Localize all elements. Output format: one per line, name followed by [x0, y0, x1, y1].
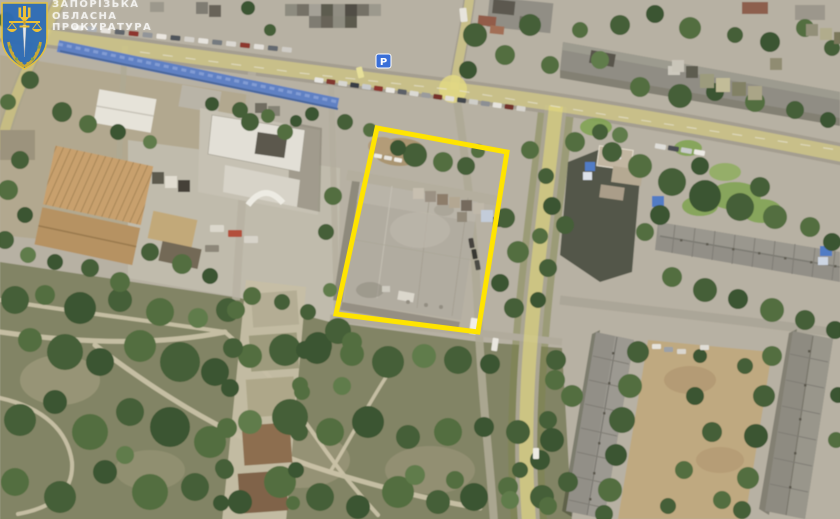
watermark-line-3: ПРОКУРАТУРА — [52, 22, 152, 34]
svg-text:P: P — [380, 57, 387, 68]
watermark-line-2: ОБЛАСНА — [52, 11, 152, 23]
watermark-line-1: ЗАПОРІЗЬКА — [52, 0, 152, 11]
terrain — [0, 0, 840, 519]
watermark-text: ЗАПОРІЗЬКА ОБЛАСНА ПРОКУРАТУРА — [52, 0, 152, 34]
satellite-canvas: P — [0, 0, 840, 519]
satellite-map: P ЗАПОРІЗЬКА ОБ — [0, 0, 840, 519]
parking-sign-icon: P — [376, 54, 391, 68]
